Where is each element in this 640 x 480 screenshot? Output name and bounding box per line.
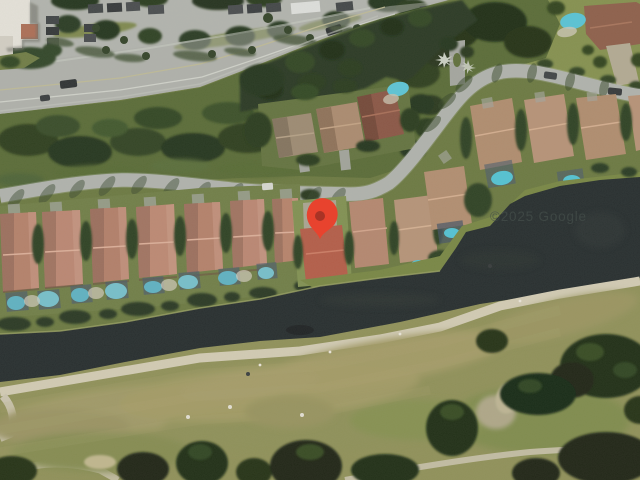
svg-text:©2025 Google: ©2025 Google	[490, 209, 587, 224]
